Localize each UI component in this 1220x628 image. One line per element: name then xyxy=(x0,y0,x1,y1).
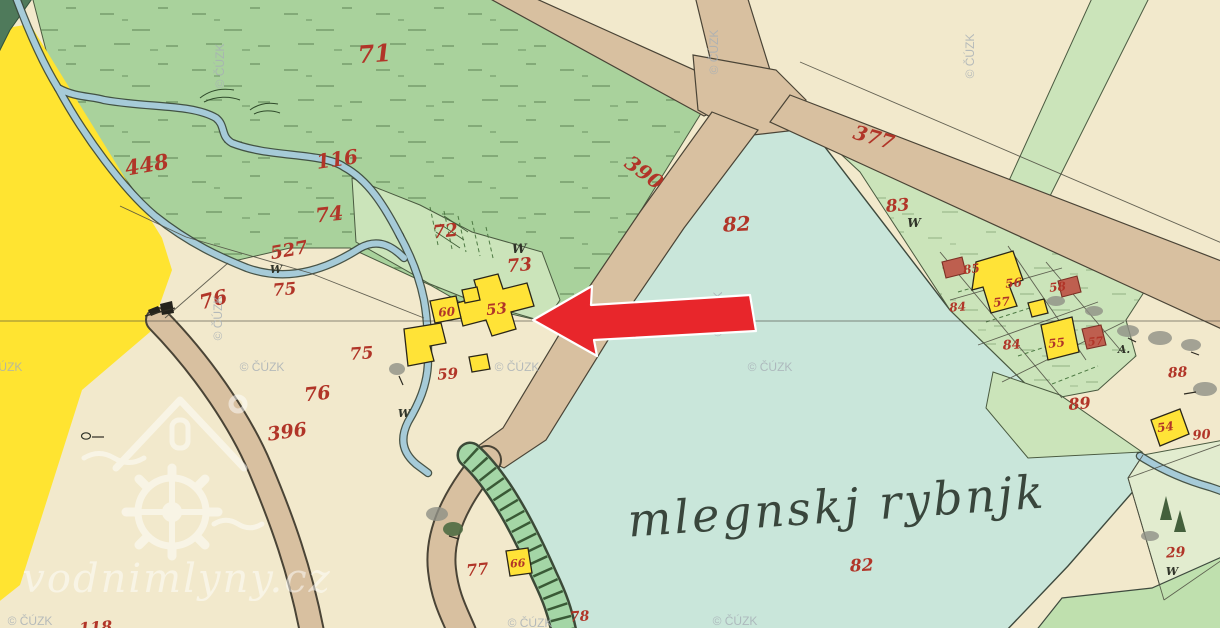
parcel-number-label: 89 xyxy=(1067,393,1092,414)
copyright-watermark-text: © ČÚZK xyxy=(0,359,22,374)
parcel-number-label: W xyxy=(1166,565,1180,578)
parcel-number-label: 88 xyxy=(1167,364,1188,381)
parcel-number-label: 73 xyxy=(506,254,533,277)
copyright-watermark-text: © ČÚZK xyxy=(212,44,227,89)
parcel-number-label: W xyxy=(270,263,284,276)
parcel-number-label: 90 xyxy=(1192,427,1211,444)
parcel-number-label: 78 xyxy=(569,608,590,625)
building-small-a xyxy=(462,287,480,303)
parcel-number-label: 74 xyxy=(314,201,344,228)
parcel-number-label: 84 xyxy=(1002,337,1021,353)
building-small-c xyxy=(1028,299,1048,317)
parcel-number-label: 29 xyxy=(1164,544,1186,561)
parcel-number-label: W xyxy=(907,216,922,230)
copyright-watermark-text: © ČÚZK xyxy=(962,34,977,79)
map-viewport: 714481167452772W733903778283W76W75757639… xyxy=(0,0,1220,628)
building-small-b xyxy=(469,354,490,372)
brand-watermark-text: vodnimlyny.cz xyxy=(22,556,331,602)
parcel-number-label: 77 xyxy=(465,559,489,580)
copyright-watermark-text: © ČÚZK xyxy=(706,30,721,75)
copyright-watermark-text: © ČÚZK xyxy=(240,359,285,374)
parcel-number-label: 60 xyxy=(438,304,456,319)
copyright-watermark-text: © ČÚZK xyxy=(748,359,793,374)
parcel-number-label: 82 xyxy=(848,555,874,576)
parcel-number-label: 66 xyxy=(510,556,527,570)
parcel-number-label: 56 xyxy=(1005,275,1024,291)
parcel-number-label: 58 xyxy=(1049,279,1068,295)
parcel-number-label: 53 xyxy=(485,299,508,319)
parcel-number-label: 83 xyxy=(884,195,910,217)
parcel-number-label: 76 xyxy=(303,382,332,407)
parcel-number-label: W xyxy=(398,407,412,420)
parcel-number-label: 72 xyxy=(432,220,459,244)
parcel-number-label: 75 xyxy=(272,279,297,301)
parcel-number-label: 82 xyxy=(721,211,751,236)
copyright-watermark-text: © ČÚZK xyxy=(508,615,553,628)
parcel-number-label: A. xyxy=(1117,343,1131,356)
parcel-number-label: 71 xyxy=(357,38,392,69)
parcel-number-label: 57 xyxy=(993,294,1012,310)
copyright-watermark-text: © ČÚZK xyxy=(713,613,758,628)
copyright-watermark-text: © ČÚZK xyxy=(495,359,540,374)
parcel-number-label: 57 xyxy=(1087,334,1104,349)
parcel-number-label: 85 xyxy=(962,261,980,277)
historic-cadastral-map: 714481167452772W733903778283W76W75757639… xyxy=(0,0,1220,628)
parcel-number-label: 55 xyxy=(1048,335,1066,351)
parcel-number-label: 75 xyxy=(349,343,374,365)
copyright-watermark-text: © ČÚZK xyxy=(210,296,225,341)
parcel-number-label: 118 xyxy=(78,617,113,628)
parcel-number-label: 54 xyxy=(1156,419,1174,435)
parcel-number-label: 59 xyxy=(437,364,460,383)
parcel-number-label: 84 xyxy=(949,299,967,314)
copyright-watermark-text: © ČÚZK xyxy=(8,613,53,628)
